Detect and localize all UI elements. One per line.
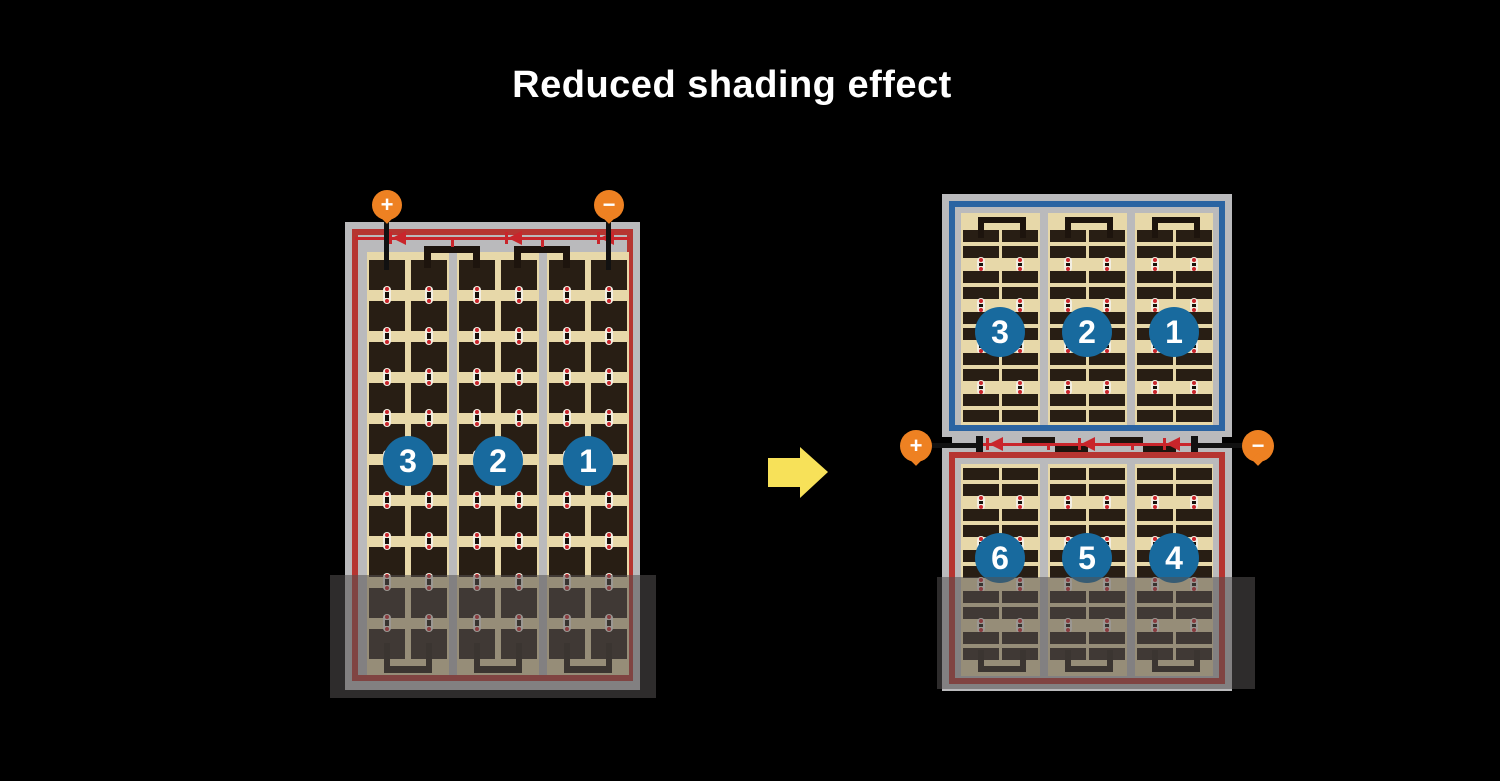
solder-dot [565,533,569,537]
solder-dot [1066,381,1070,385]
solder-dot [475,410,479,414]
section-divider [1040,213,1048,425]
solder-dot [517,410,521,414]
interconnect-bar [517,538,521,544]
interconnect-bar [1018,304,1022,307]
solder-dot [1105,258,1109,262]
solder-dot [475,287,479,291]
interconnect-bar [475,292,479,298]
interconnect-bar [979,304,983,307]
solder-dot [427,545,431,549]
cell-interconnect-dot [1064,495,1072,510]
interconnect-bar [1066,501,1070,504]
solder-dot [517,287,521,291]
solder-dot [427,369,431,373]
busbar [473,246,480,268]
diode-triangle [1166,437,1180,451]
interconnect-bar [1105,501,1109,504]
interconnect-bar [1018,263,1022,266]
interconnect-bar [385,292,389,298]
half-cell-strip [1137,410,1173,422]
string-number-badge: 5 [1062,533,1112,583]
solder-dot [385,422,389,426]
solder-dot [565,381,569,385]
plus-terminal: + [900,430,932,462]
solder-dot [1192,496,1196,500]
interconnect-bar [979,263,983,266]
solder-dot [385,533,389,537]
half-cell-strip [1002,509,1038,521]
busbar [978,217,1026,223]
half-cell-strip [963,468,999,480]
solder-dot [517,545,521,549]
cell-interconnect-dot [425,327,433,345]
interconnect-bar [385,415,389,421]
solder-dot [385,381,389,385]
solder-dot [565,545,569,549]
cell-interconnect-dot [383,532,391,550]
solder-dot [607,369,611,373]
half-cell-strip [1089,394,1125,406]
interconnect-bar [607,333,611,339]
solder-dot [565,410,569,414]
shading-overlay [330,575,656,698]
busbar [978,217,984,238]
cell-interconnect-dot [977,380,985,395]
solder-dot [427,410,431,414]
half-cell-strip [1176,394,1212,406]
interconnect-bar [1192,304,1196,307]
solder-dot [565,287,569,291]
interconnect-bar [565,292,569,298]
busbar [1152,217,1158,238]
busbar [424,246,431,268]
cell-interconnect-dot [1064,380,1072,395]
solder-dot [475,422,479,426]
string-number-badge: 1 [563,436,613,486]
solder-dot [607,504,611,508]
interconnect-bar [427,415,431,421]
solder-dot [1105,496,1109,500]
half-cell-strip [1137,394,1173,406]
half-cell-strip [1050,468,1086,480]
busbar [1110,437,1143,443]
solder-dot [565,422,569,426]
interconnect-bar [1192,386,1196,389]
interconnect-bar [565,415,569,421]
busbar [1022,437,1055,443]
solder-dot [1192,381,1196,385]
solder-dot [1018,496,1022,500]
cell-interconnect-dot [1151,380,1159,395]
cell-interconnect-dot [473,532,481,550]
interconnect-bar [607,292,611,298]
cell-interconnect-dot [605,327,613,345]
diode-triangle [1081,437,1095,451]
interconnect-bar [607,497,611,503]
cell-interconnect-dot [1016,298,1024,313]
minus-terminal: − [1242,430,1274,462]
interconnect-bar [979,501,983,504]
solder-dot [475,533,479,537]
solder-dot [475,381,479,385]
solder-dot [607,340,611,344]
interconnect-bar [427,497,431,503]
solder-dot [427,422,431,426]
diode-stub [541,239,544,247]
solder-dot [565,328,569,332]
interconnect-bar [475,333,479,339]
shading-diagram-canvas: Reduced shading effect 321 + − 362514 + … [0,0,1500,781]
string-number-badge: 2 [1062,307,1112,357]
page-title: Reduced shading effect [482,64,982,107]
half-cell-strip [1089,509,1125,521]
half-cell-strip [963,271,999,283]
busbar [424,246,480,253]
solder-dot [979,258,983,262]
solder-dot [475,328,479,332]
cell-interconnect-dot [425,368,433,386]
cell-interconnect-dot [473,286,481,304]
interconnect-bar [1066,304,1070,307]
bypass-diode-icon [1163,437,1181,451]
cell-interconnect-dot [425,409,433,427]
cell-interconnect-dot [563,286,571,304]
interconnect-bar [385,538,389,544]
interconnect-bar [1153,386,1157,389]
string-number-badge: 3 [383,436,433,486]
cell-interconnect-dot [1190,257,1198,272]
cell-interconnect-dot [605,286,613,304]
cell-interconnect-dot [515,409,523,427]
solder-dot [385,504,389,508]
half-cell-strip [1176,468,1212,480]
bypass-diode-icon [505,231,523,245]
solder-dot [1153,258,1157,262]
solder-dot [385,299,389,303]
interconnect-bar [427,374,431,380]
cell-interconnect-dot [605,532,613,550]
cell-interconnect-dot [1016,380,1024,395]
busbar [1194,217,1200,238]
interconnect-bar [475,538,479,544]
terminal-wire [1196,443,1246,448]
interconnect-bar [979,386,983,389]
interconnect-bar [607,538,611,544]
diode-triangle [508,231,522,245]
solder-dot [607,381,611,385]
solder-dot [517,504,521,508]
interconnect-bar [1153,304,1157,307]
solder-dot [475,340,479,344]
cell-interconnect-dot [1190,298,1198,313]
solder-dot [1018,258,1022,262]
busbar [514,246,521,268]
busbar [1107,217,1113,238]
cell-interconnect-dot [425,491,433,509]
solder-dot [427,504,431,508]
solder-dot [385,410,389,414]
solder-dot [517,492,521,496]
solder-dot [1192,258,1196,262]
half-cell-strip [1050,394,1086,406]
string-number-badge: 1 [1149,307,1199,357]
solder-dot [1066,496,1070,500]
solder-dot [427,533,431,537]
cell-interconnect-dot [515,532,523,550]
solder-dot [385,369,389,373]
solder-dot [607,287,611,291]
solder-dot [385,328,389,332]
cell-interconnect-dot [473,368,481,386]
cell-interconnect-dot [977,495,985,510]
interconnect-bar [565,374,569,380]
half-cell-strip [1002,271,1038,283]
solder-dot [385,492,389,496]
cell-interconnect-dot [383,409,391,427]
cell-interconnect-dot [425,286,433,304]
solder-dot [427,328,431,332]
terminal-wire [928,443,982,448]
solder-dot [517,328,521,332]
interconnect-bar [475,374,479,380]
cell-interconnect-dot [977,298,985,313]
solder-dot [427,492,431,496]
diode-triangle [392,231,406,245]
cell-interconnect-dot [563,491,571,509]
half-cell-strip [1050,509,1086,521]
busbar [1065,217,1071,238]
cell-interconnect-dot [1103,257,1111,272]
interconnect-bar [1018,501,1022,504]
solder-dot [517,369,521,373]
cell-interconnect-dot [383,327,391,345]
bypass-diode-icon [1078,437,1096,451]
cell-interconnect-dot [473,409,481,427]
string-number-badge: 2 [473,436,523,486]
interconnect-bar [385,497,389,503]
solder-dot [517,299,521,303]
half-cell-strip [1089,410,1125,422]
cell-interconnect-dot [605,409,613,427]
solder-dot [565,492,569,496]
cell-interconnect-dot [383,491,391,509]
shading-overlay [937,577,1255,689]
half-cell-strip [1176,271,1212,283]
interconnect-bar [517,497,521,503]
bypass-diode-icon [389,231,407,245]
half-cell-strip [1050,271,1086,283]
interconnect-bar [517,292,521,298]
cell-interconnect-dot [515,327,523,345]
half-cell-strip [1002,468,1038,480]
busbar [1020,217,1026,238]
cell-interconnect-dot [515,491,523,509]
interconnect-bar [1018,386,1022,389]
string-number-badge: 3 [975,307,1025,357]
solder-dot [607,299,611,303]
cell-interconnect-dot [563,409,571,427]
half-cell-strip [1089,468,1125,480]
busbar [1152,217,1200,223]
cell-interconnect-dot [1064,257,1072,272]
cell-interconnect-dot [563,532,571,550]
half-cell-strip [1176,509,1212,521]
solder-dot [607,533,611,537]
cell-interconnect-dot [977,257,985,272]
half-cell-strip [963,509,999,521]
cell-interconnect-dot [515,286,523,304]
arrow-shaft [768,458,800,487]
interconnect-bar [427,538,431,544]
cell-interconnect-dot [1103,380,1111,395]
solder-dot [427,381,431,385]
interconnect-bar [1105,386,1109,389]
solder-dot [1018,299,1022,303]
solder-dot [979,381,983,385]
cell-interconnect-dot [515,368,523,386]
string-number-badge: 4 [1149,533,1199,583]
cell-interconnect-dot [563,327,571,345]
interconnect-bar [1105,263,1109,266]
solder-dot [1066,299,1070,303]
string-number-badge: 6 [975,533,1025,583]
interconnect-bar [607,415,611,421]
interconnect-bar [385,333,389,339]
interconnect-bar [565,497,569,503]
half-cell-strip [1002,394,1038,406]
minus-terminal: − [594,190,624,220]
solder-dot [427,340,431,344]
interconnect-bar [565,538,569,544]
cell-interconnect-dot [1103,495,1111,510]
interconnect-bar [427,333,431,339]
interconnect-bar [1192,263,1196,266]
plus-terminal: + [372,190,402,220]
cell-interconnect-dot [1064,298,1072,313]
interconnect-bar [1105,304,1109,307]
cell-interconnect-dot [383,368,391,386]
half-cell-strip [1137,468,1173,480]
solder-dot [475,504,479,508]
half-cell-strip [1176,410,1212,422]
half-cell-strip [1050,410,1086,422]
interconnect-bar [1153,263,1157,266]
cell-interconnect-dot [425,532,433,550]
solder-dot [517,340,521,344]
solder-dot [1105,381,1109,385]
solder-dot [475,369,479,373]
half-cell-strip [1089,271,1125,283]
solder-dot [979,299,983,303]
busbar [1065,217,1113,223]
interconnect-bar [475,497,479,503]
bypass-diode-icon [986,437,1004,451]
solder-dot [1105,299,1109,303]
interconnect-bar [427,292,431,298]
cell-interconnect-dot [1016,257,1024,272]
solder-dot [565,299,569,303]
cell-interconnect-dot [1016,495,1024,510]
cell-interconnect-dot [473,491,481,509]
solder-dot [607,492,611,496]
solder-dot [427,299,431,303]
half-cell-strip [1137,509,1173,521]
half-cell-strip [1002,410,1038,422]
solder-dot [385,340,389,344]
solder-dot [1066,258,1070,262]
solder-dot [607,410,611,414]
interconnect-bar [1192,501,1196,504]
solder-dot [385,287,389,291]
solder-dot [565,504,569,508]
cell-interconnect-dot [605,368,613,386]
solder-dot [1153,299,1157,303]
interconnect-bar [517,415,521,421]
solder-dot [565,340,569,344]
half-cell-strip [1137,271,1173,283]
cell-interconnect-dot [473,327,481,345]
interconnect-bar [1066,386,1070,389]
arrow-head-icon [800,447,828,498]
interconnect-bar [1066,263,1070,266]
solder-dot [475,545,479,549]
busbar [514,246,570,253]
cell-interconnect-dot [1103,298,1111,313]
interconnect-bar [1153,501,1157,504]
interconnect-bar [517,374,521,380]
solder-dot [607,545,611,549]
solder-dot [517,381,521,385]
busbar [563,246,570,268]
cell-interconnect-dot [1190,495,1198,510]
solder-dot [1018,381,1022,385]
solder-dot [517,422,521,426]
interconnect-bar [385,374,389,380]
interconnect-bar [607,374,611,380]
cell-interconnect-dot [1151,257,1159,272]
interconnect-bar [565,333,569,339]
cell-interconnect-dot [605,491,613,509]
interconnect-bar [475,415,479,421]
solder-dot [607,328,611,332]
interconnect-bar [517,333,521,339]
solder-dot [427,287,431,291]
cell-interconnect-dot [1151,298,1159,313]
half-cell-strip [963,394,999,406]
cell-interconnect-dot [1151,495,1159,510]
solder-dot [1153,496,1157,500]
diode-triangle [989,437,1003,451]
half-cell-strip [963,410,999,422]
solder-dot [1153,381,1157,385]
diode-stub [451,239,454,247]
cell-interconnect-dot [1190,380,1198,395]
solder-dot [607,422,611,426]
cell-interconnect-dot [563,368,571,386]
solder-dot [475,492,479,496]
solder-dot [565,369,569,373]
solder-dot [475,299,479,303]
cell-interconnect-dot [383,286,391,304]
solder-dot [517,533,521,537]
solder-dot [979,496,983,500]
section-divider [1127,213,1135,425]
solder-dot [385,545,389,549]
solder-dot [1192,299,1196,303]
